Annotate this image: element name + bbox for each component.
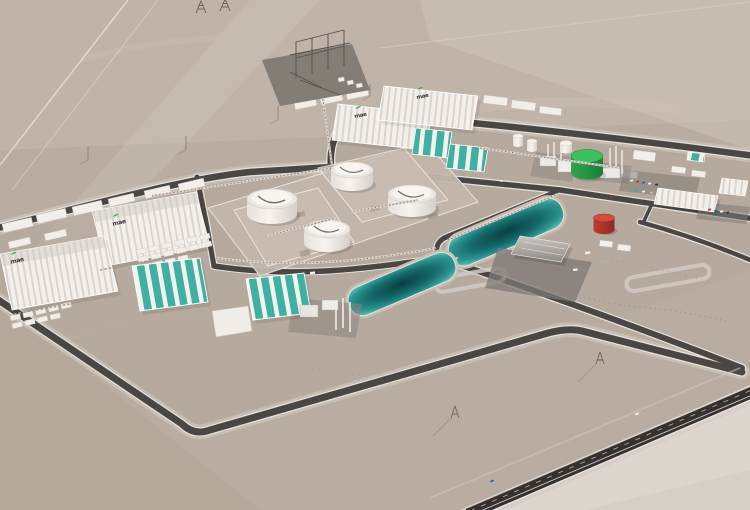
render-viewport: mae mae xyxy=(0,0,750,510)
teal-box-building xyxy=(687,152,705,162)
storage-tank-4 xyxy=(388,185,439,219)
red-storage-tank xyxy=(594,214,618,235)
ribbed-building-far-east xyxy=(719,178,748,196)
storage-tank-3 xyxy=(331,162,376,193)
storage-tank-1 xyxy=(247,189,300,226)
white-tank-small xyxy=(560,141,572,154)
aerial-plant-render: mae mae xyxy=(0,0,750,510)
teal-hall-ne-1 xyxy=(412,128,452,158)
teal-hall-sw-1 xyxy=(132,258,208,311)
